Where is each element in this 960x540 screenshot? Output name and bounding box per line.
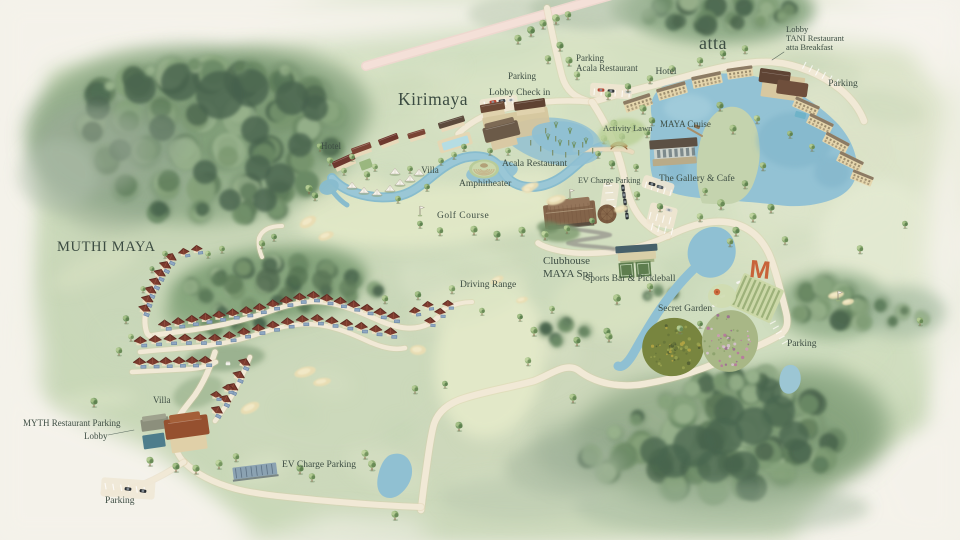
svg-text:Amphitheater: Amphitheater (459, 179, 512, 189)
svg-text:EV Charge Parking: EV Charge Parking (578, 176, 640, 185)
svg-text:MYTH Restaurant Parking: MYTH Restaurant Parking (23, 418, 121, 428)
svg-text:Lobby Check in: Lobby Check in (489, 88, 550, 98)
svg-text:Hotel: Hotel (321, 141, 341, 151)
svg-text:Parking: Parking (828, 79, 858, 89)
svg-text:Villa: Villa (421, 165, 438, 175)
svg-text:MAYA Cruise: MAYA Cruise (660, 119, 711, 129)
svg-text:Activity Lawn: Activity Lawn (603, 123, 653, 133)
svg-text:EV Charge Parking: EV Charge Parking (282, 460, 356, 470)
svg-text:Acala Restaurant: Acala Restaurant (502, 159, 568, 169)
svg-text:Parking: Parking (787, 339, 817, 349)
svg-text:Kirimaya: Kirimaya (398, 89, 468, 109)
svg-text:Acala Restaurant: Acala Restaurant (576, 63, 638, 73)
svg-text:Parking: Parking (508, 71, 536, 81)
svg-text:Driving Range: Driving Range (460, 280, 516, 290)
svg-text:atta: atta (699, 33, 727, 53)
svg-text:Secret Garden: Secret Garden (658, 304, 712, 314)
svg-text:Golf Course: Golf Course (437, 210, 489, 221)
svg-text:MUTHI MAYA: MUTHI MAYA (57, 239, 156, 255)
svg-text:Lobby: Lobby (84, 431, 108, 441)
svg-text:Hotel: Hotel (655, 67, 676, 77)
svg-text:Sports Bar & Pickleball: Sports Bar & Pickleball (585, 274, 676, 284)
svg-text:Parking: Parking (105, 496, 135, 506)
svg-text:atta Breakfast: atta Breakfast (786, 42, 834, 52)
svg-text:Clubhouse: Clubhouse (543, 255, 590, 267)
svg-text:Villa: Villa (153, 395, 170, 405)
svg-text:Parking: Parking (576, 53, 604, 63)
svg-text:The Gallery & Cafe: The Gallery & Cafe (659, 173, 735, 184)
svg-text:M: M (748, 255, 772, 285)
